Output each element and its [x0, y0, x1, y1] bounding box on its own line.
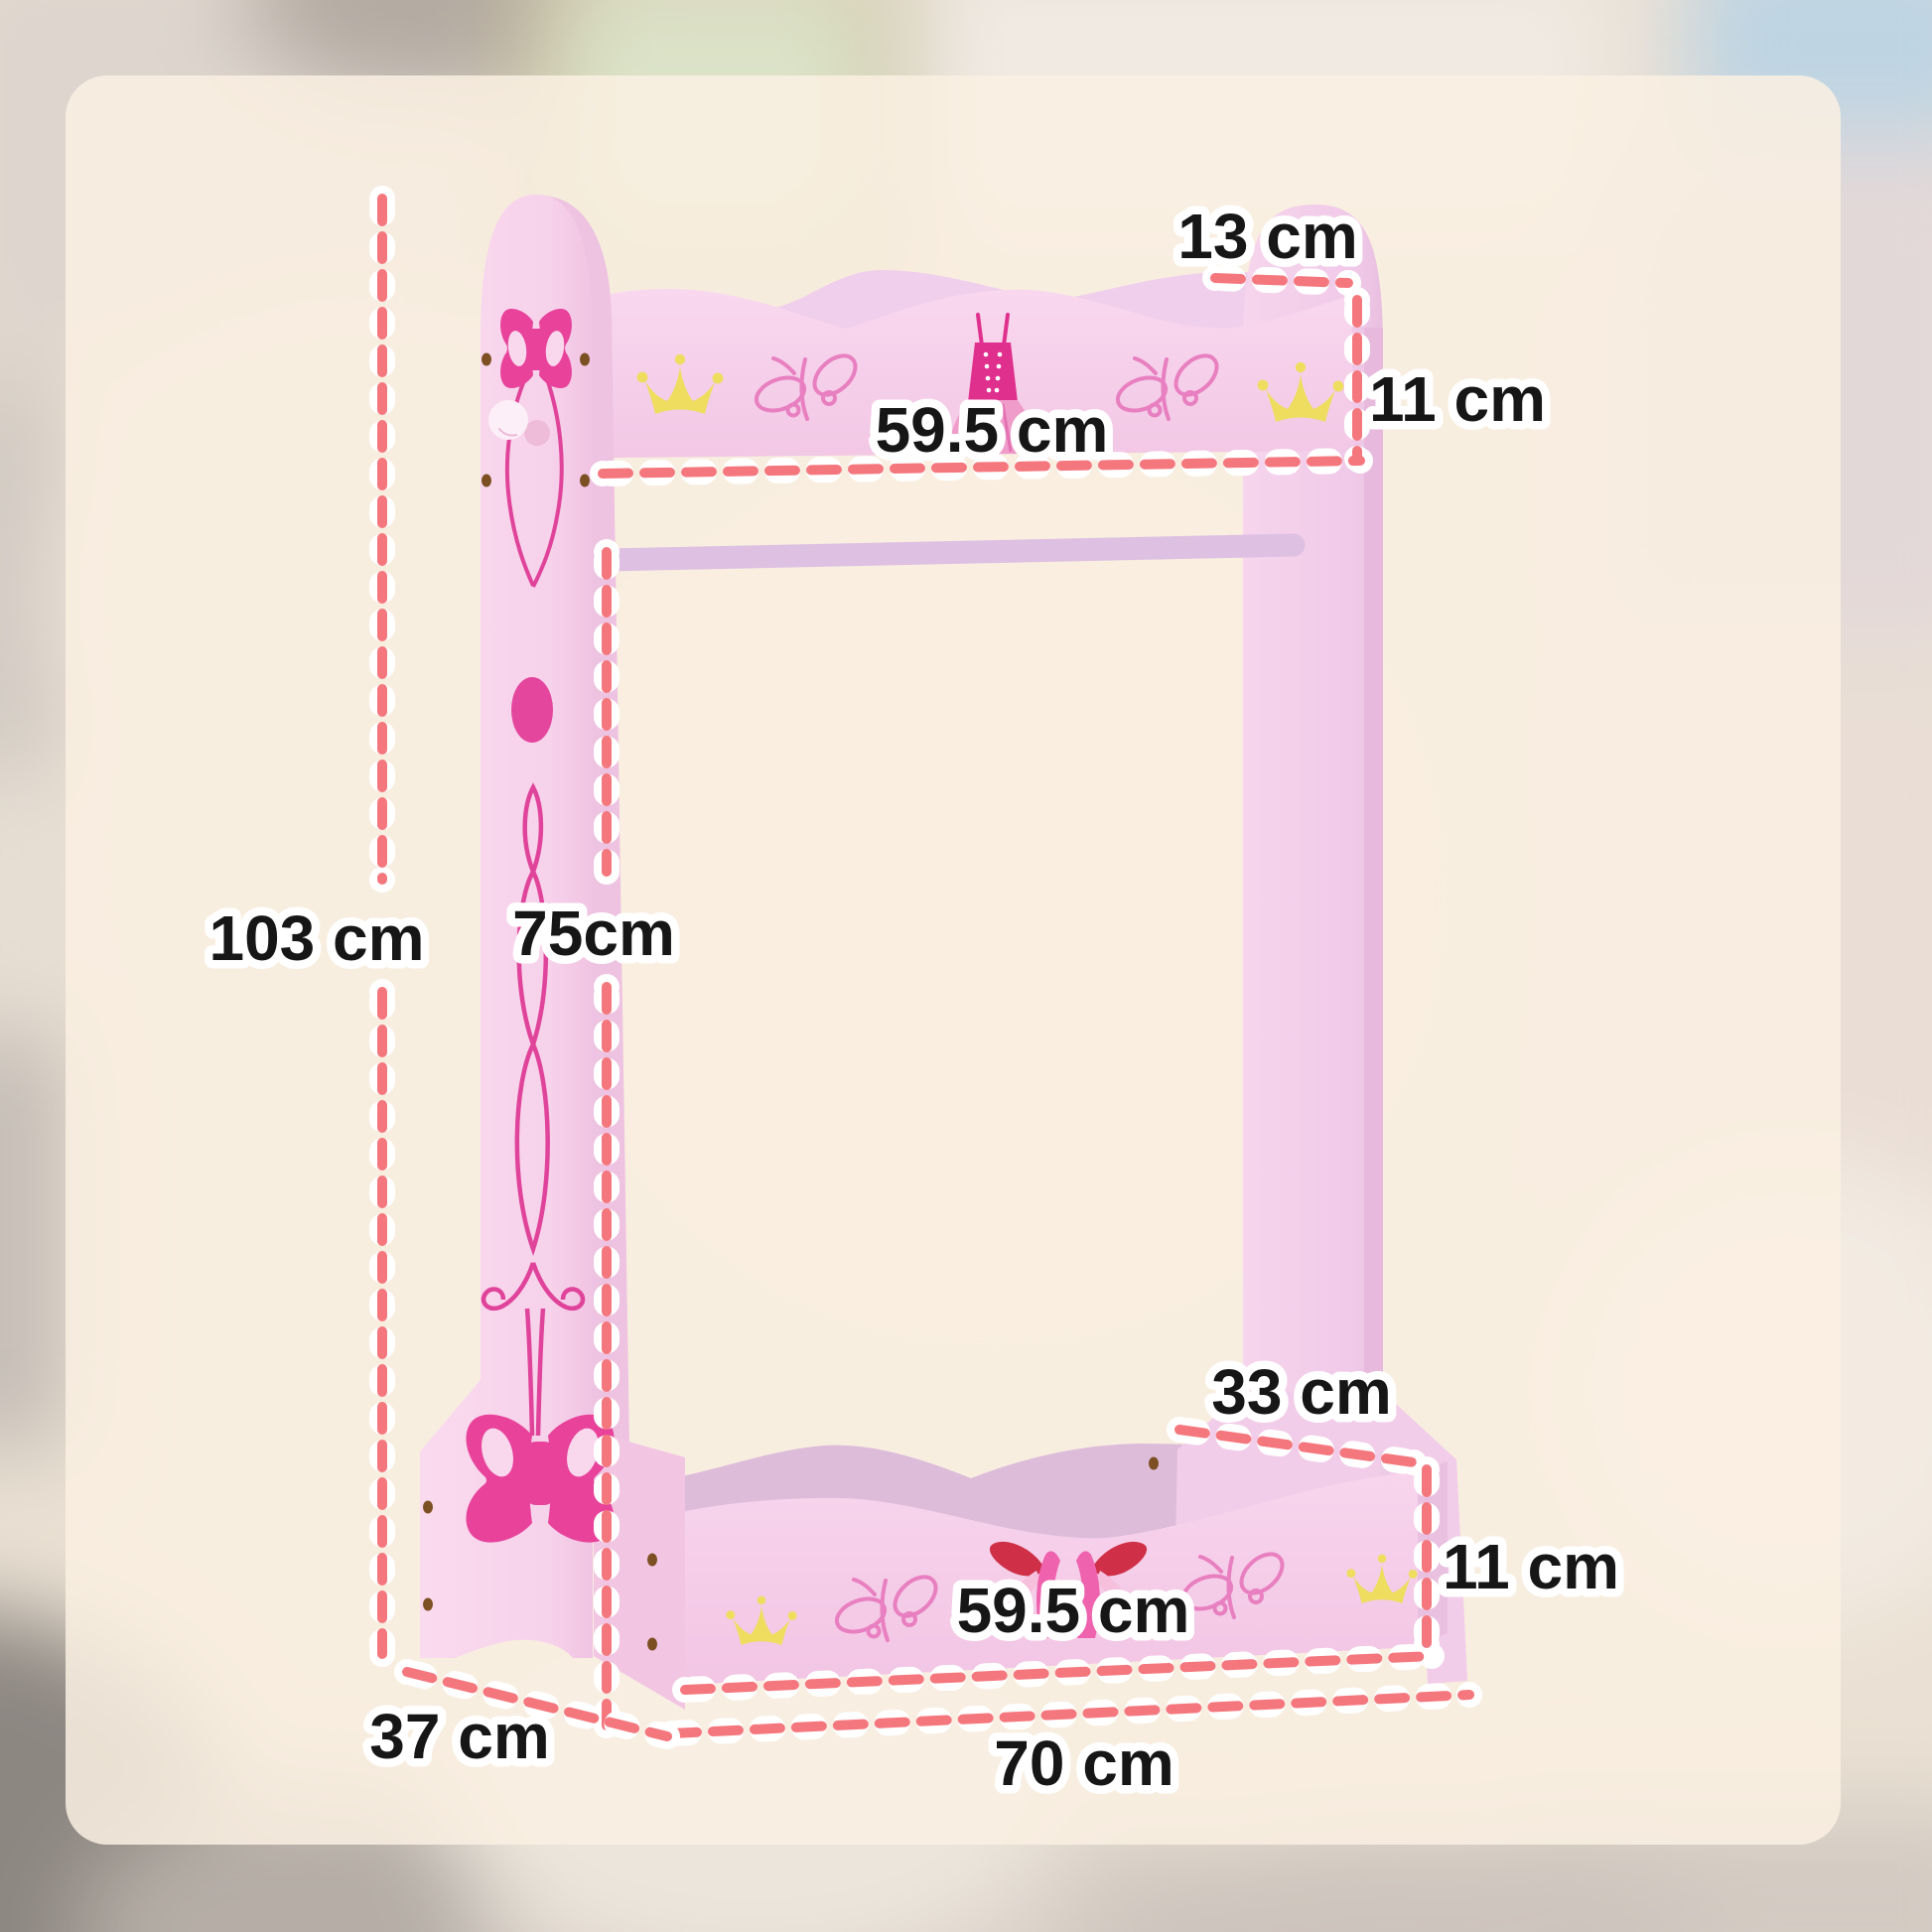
svg-text:37 cm: 37 cm [369, 1701, 549, 1772]
svg-text:103 cm: 103 cm [208, 902, 424, 974]
svg-text:33 cm: 33 cm [1211, 1356, 1391, 1428]
svg-text:59.5 cm: 59.5 cm [876, 394, 1109, 466]
svg-text:70 cm: 70 cm [994, 1727, 1173, 1799]
svg-text:75cm: 75cm [512, 897, 675, 969]
svg-text:59.5 cm: 59.5 cm [957, 1575, 1190, 1646]
svg-text:13 cm: 13 cm [1177, 201, 1357, 272]
svg-text:11 cm: 11 cm [1369, 363, 1546, 435]
svg-text:11 cm: 11 cm [1443, 1531, 1619, 1602]
